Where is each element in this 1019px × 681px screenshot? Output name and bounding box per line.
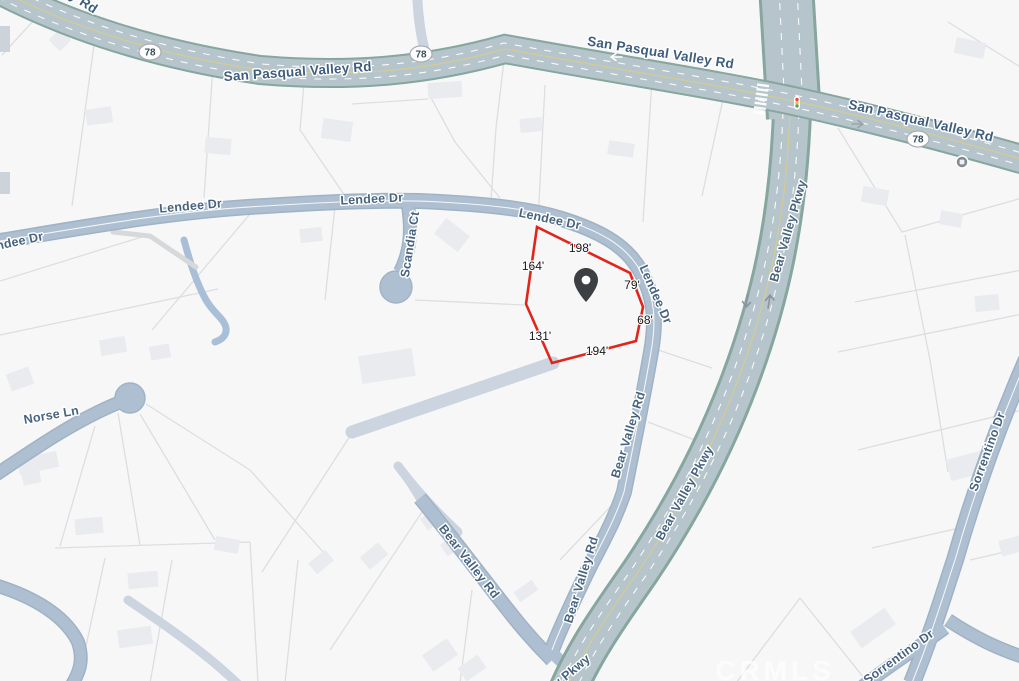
shield-78-c: 78 xyxy=(907,131,929,147)
stream xyxy=(184,240,226,342)
san-pasqual-valley-rd-road xyxy=(0,0,1019,169)
lendee-bear-valley-rd xyxy=(0,201,654,650)
norse-cul-de-sac xyxy=(115,383,145,413)
dim-bottom: 194' xyxy=(586,344,608,358)
transit-stop-icon xyxy=(956,156,968,168)
lendee-centerline xyxy=(0,201,654,650)
shield-78-a-text: 78 xyxy=(144,48,156,59)
local-roads xyxy=(0,201,1019,681)
property-pin[interactable] xyxy=(574,268,598,302)
dim-top: 198' xyxy=(569,241,591,255)
dim-right-upper: 79' xyxy=(624,278,640,292)
dim-left: 164' xyxy=(522,259,544,273)
road-label-bear-valley-rd-3: Bear Valley Rd xyxy=(436,522,502,601)
watermark: CRMLS xyxy=(715,655,835,681)
shield-78-c-text: 78 xyxy=(912,135,924,146)
shield-78-a: 78 xyxy=(139,44,161,60)
traffic-light-icon xyxy=(794,96,800,110)
shield-78-b-text: 78 xyxy=(415,50,427,61)
road-label-scandia: Scandia Ct xyxy=(398,210,422,279)
dim-right-lower: 68' xyxy=(637,313,653,327)
dim-bottom-left: 131' xyxy=(529,329,551,343)
lendee-bear-valley-rd-casing xyxy=(0,201,654,650)
map-viewport[interactable]: 198' 164' 79' 68' 131' 194' San Pasqual … xyxy=(0,0,1019,681)
shield-78-b: 78 xyxy=(410,46,432,62)
map-canvas[interactable]: 198' 164' 79' 68' 131' 194' San Pasqual … xyxy=(0,0,1019,681)
